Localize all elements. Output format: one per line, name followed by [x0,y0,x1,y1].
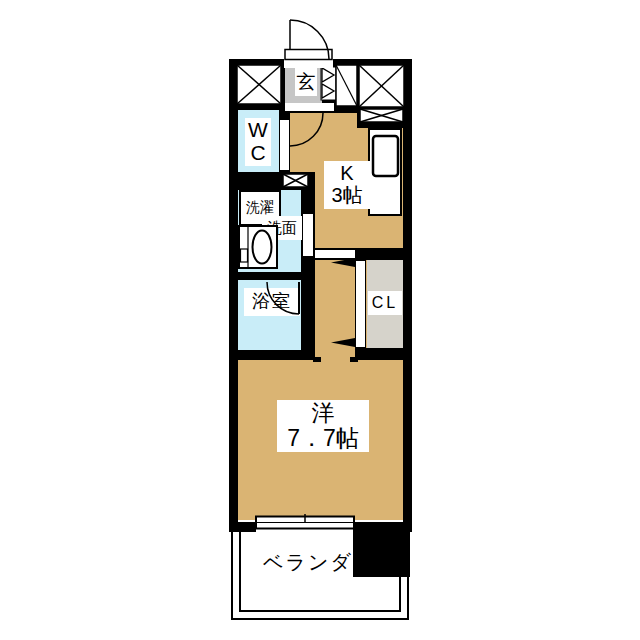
kitchen-label-line1: K [340,163,353,185]
wc-label-line1: W [248,119,268,142]
wall-left [229,59,238,532]
washroom-label: 洗面 [262,216,302,240]
kitchen-label-line2: 3帖 [331,185,362,207]
main-room-label: 洋 7．7帖 [277,400,369,452]
bathroom-label-text: 浴室 [252,292,292,311]
wall-bath-bottom [229,350,315,360]
genkan-step [285,103,334,111]
wc-door [280,120,289,170]
entrance-label: 玄 [295,68,317,96]
washroom-door [303,214,313,256]
entrance-label-text: 玄 [297,72,316,93]
kitchen-alcove-opening [315,250,355,258]
closet-label-text: CL [372,294,398,311]
wc-label-line2: C [250,142,265,165]
kitchen-counter [368,128,402,216]
main-room-label-line2: 7．7帖 [287,426,359,451]
floor-plan: 玄 W C 洗濯 洗面 浴室 K 3帖 CL 洋 7．7帖 ベランダ [0,0,640,640]
wall-bottom-left [229,522,256,532]
washroom-label-text: 洗面 [267,220,297,236]
wall-right [403,59,412,532]
bathroom-label: 浴室 [244,288,300,316]
veranda-label-text: ベランダ [263,552,353,574]
laundry-label-text: 洗濯 [246,200,274,215]
closet-label: CL [368,291,402,315]
wc-label: W C [245,118,271,166]
veranda-label: ベランダ [250,549,366,577]
wall-closet-bottom [355,348,403,360]
main-room-label-line1: 洋 [312,401,335,426]
kitchen-label: K 3帖 [324,161,370,209]
closet-folding-door [355,260,366,348]
